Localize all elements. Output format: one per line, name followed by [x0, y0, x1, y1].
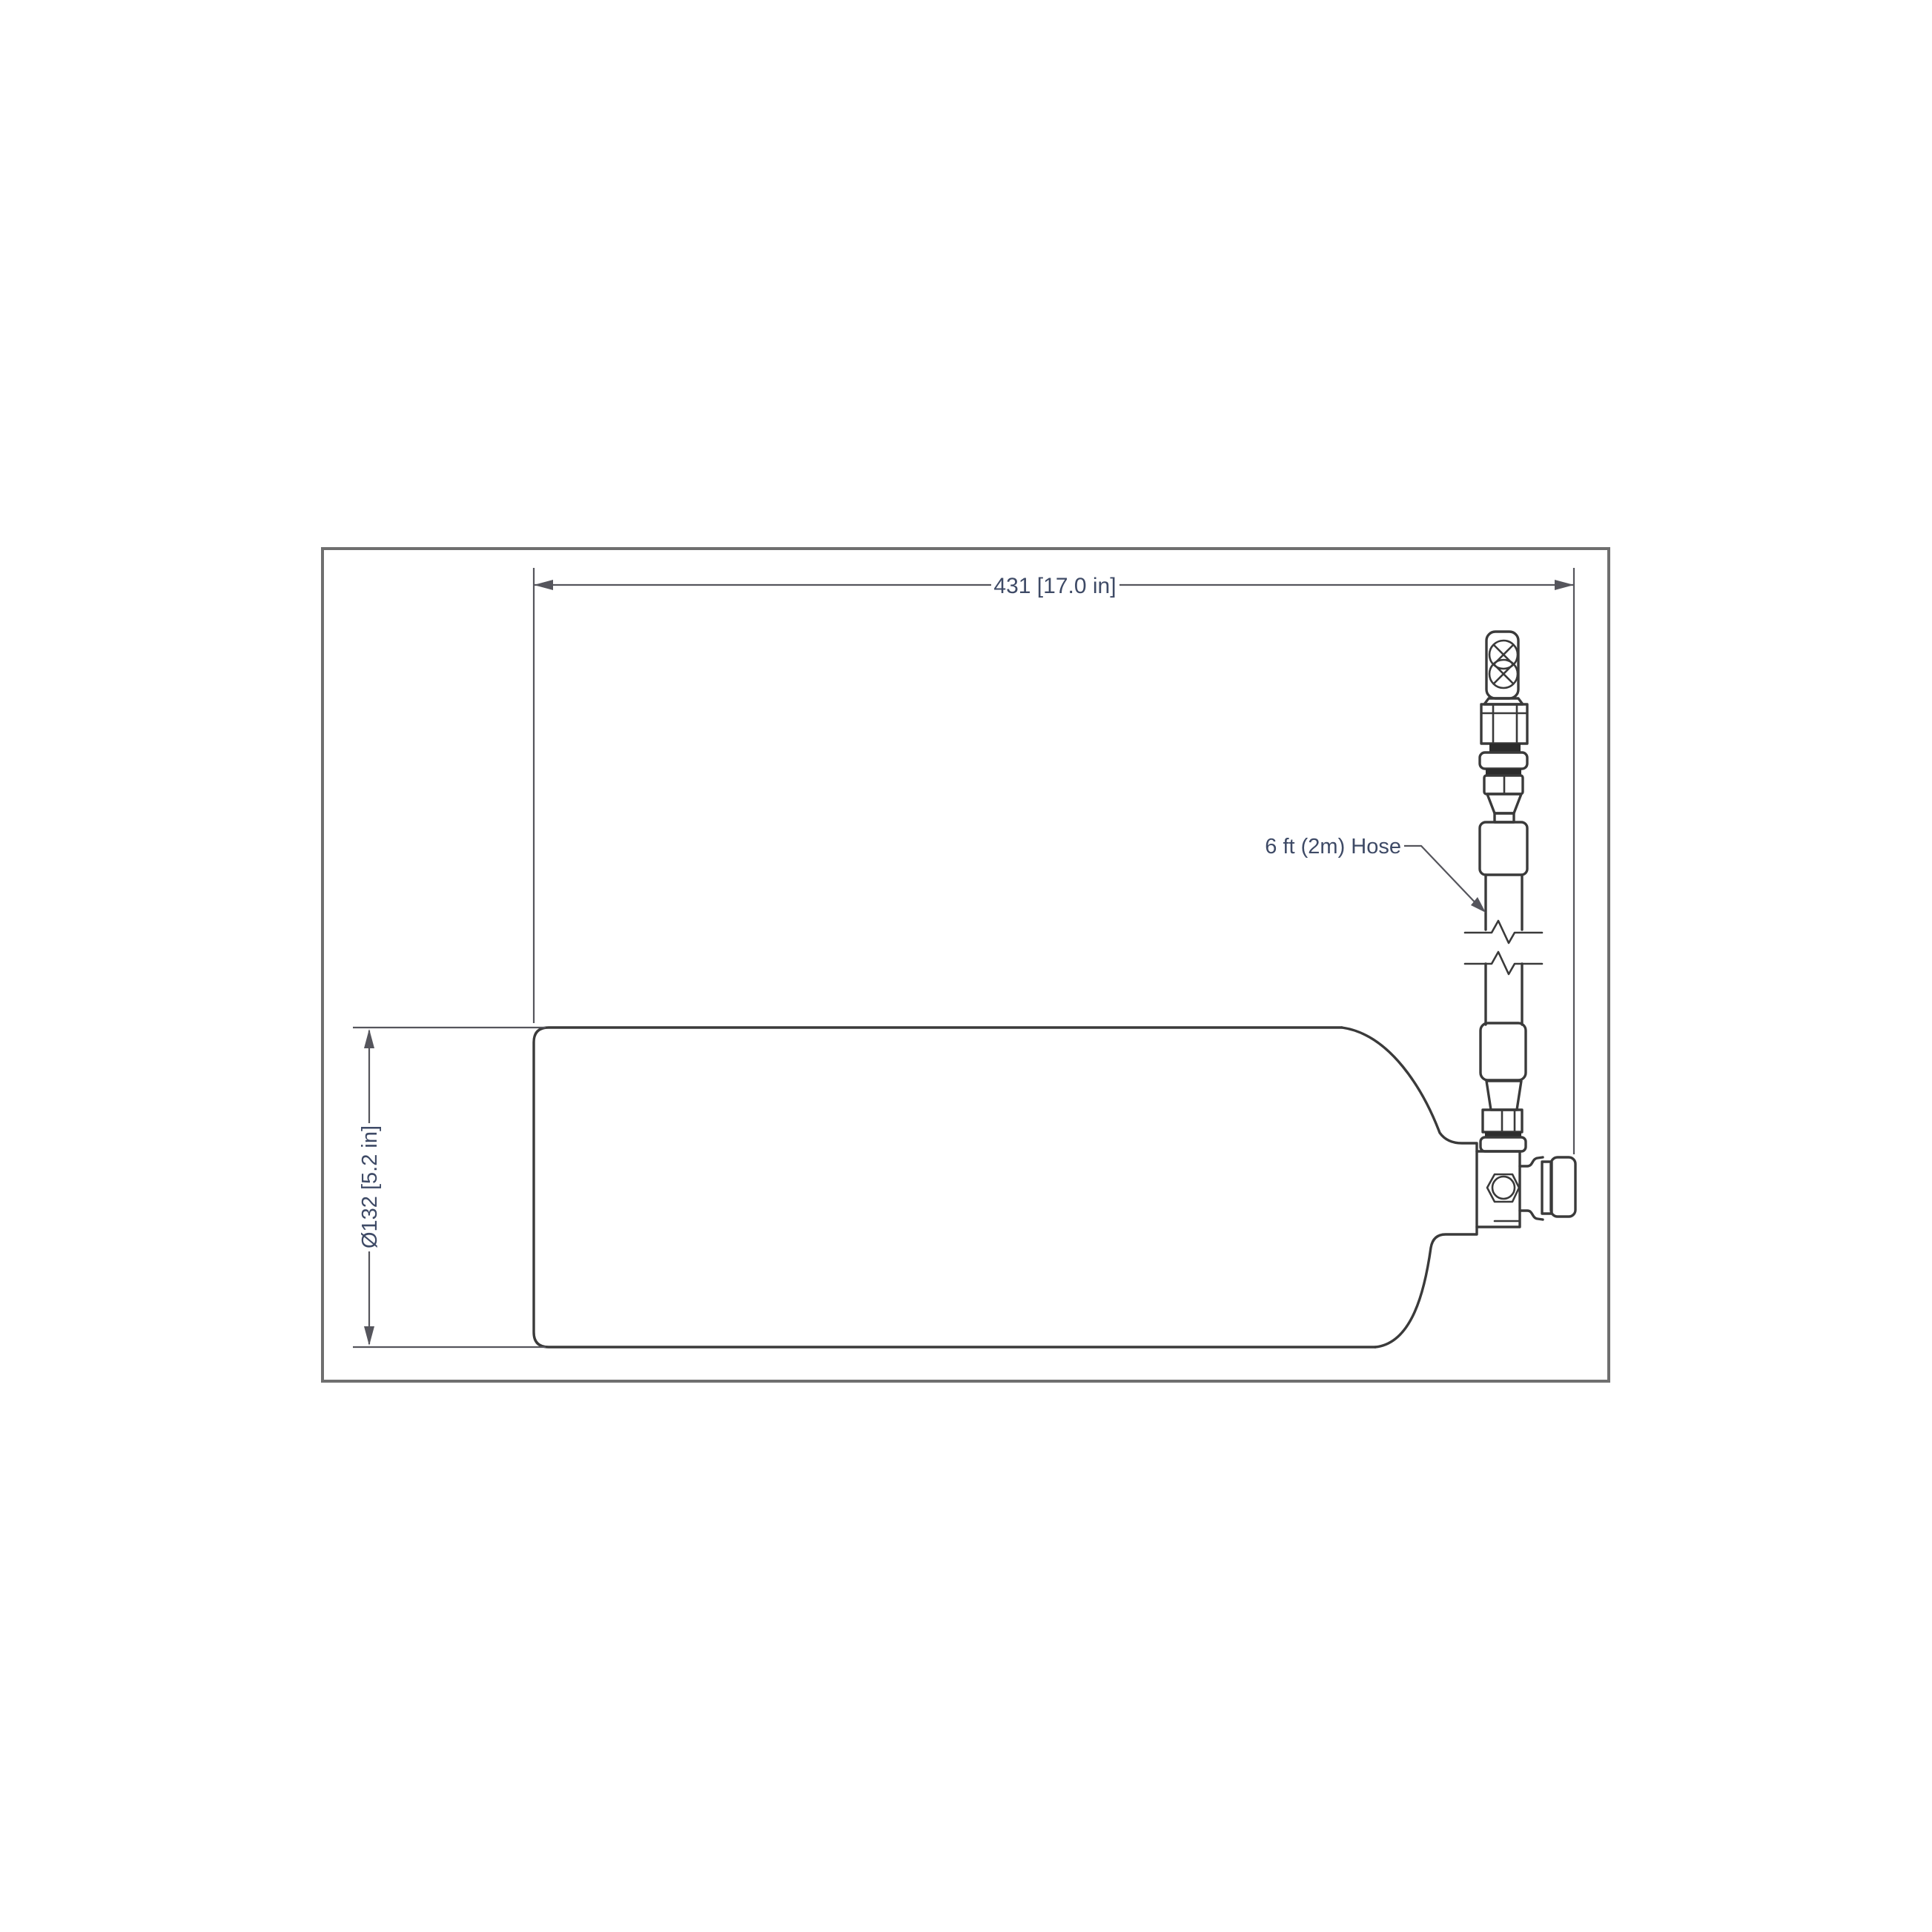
technical-drawing-canvas: 431 [17.0 in] Ø132 [5.2 in] 6 ft (2m) Ho… [0, 0, 1932, 1932]
valve-collar-ring [1481, 1137, 1526, 1151]
hose-hex-nut [1481, 704, 1527, 744]
hose-callout-label: 6 ft (2m) Hose [1265, 835, 1401, 859]
outlet-cap-knob [1551, 1157, 1575, 1217]
drawing-border-frame [322, 549, 1609, 1381]
hose-end-fitting-upper [1480, 822, 1527, 875]
hose-tube-upper [1486, 875, 1522, 930]
break-line-upper [1465, 921, 1542, 943]
dimension-arrow-left [534, 580, 553, 590]
outlet-stem-top [1520, 1157, 1543, 1166]
fitting-taper [1487, 794, 1521, 813]
dimension-arrow-up [364, 1029, 374, 1048]
dimension-diameter: Ø132 [5.2 in] [353, 1028, 546, 1347]
fitting-neck [1495, 813, 1514, 822]
diameter-dimension-label: Ø132 [5.2 in] [358, 1125, 382, 1248]
dimension-arrow-right [1555, 580, 1574, 590]
valve-hex-bore [1492, 1177, 1515, 1199]
hex-nut-facets [1481, 704, 1527, 744]
hose-tube-lower [1486, 964, 1522, 1025]
length-dimension-label: 431 [17.0 in] [993, 574, 1116, 598]
cylinder-tank [534, 1028, 1477, 1347]
outlet-stem-bottom [1520, 1211, 1543, 1220]
hose-assembly [1465, 632, 1542, 1151]
fitting-band-1 [1489, 744, 1521, 752]
dimension-arrow-down [364, 1326, 374, 1346]
cylinder-bottom-dome [1375, 1227, 1477, 1347]
hose-callout: 6 ft (2m) Hose [1265, 835, 1486, 913]
dimension-length: 431 [17.0 in] [534, 568, 1574, 1154]
cylinder-top-shoulder [1342, 1028, 1477, 1151]
ferrule-cone [1486, 1081, 1521, 1110]
safety-pin-cross-lower [1494, 664, 1513, 684]
valve-assembly [1477, 1151, 1575, 1227]
hose-ferrule [1481, 1023, 1526, 1080]
leader-line [1404, 846, 1481, 908]
valve-body [1477, 1151, 1520, 1227]
connection-nut-facets [1502, 1110, 1515, 1132]
fitting-ring-1 [1480, 752, 1527, 769]
break-line-lower [1465, 952, 1542, 974]
cylinder-body-outline [534, 1028, 1375, 1347]
